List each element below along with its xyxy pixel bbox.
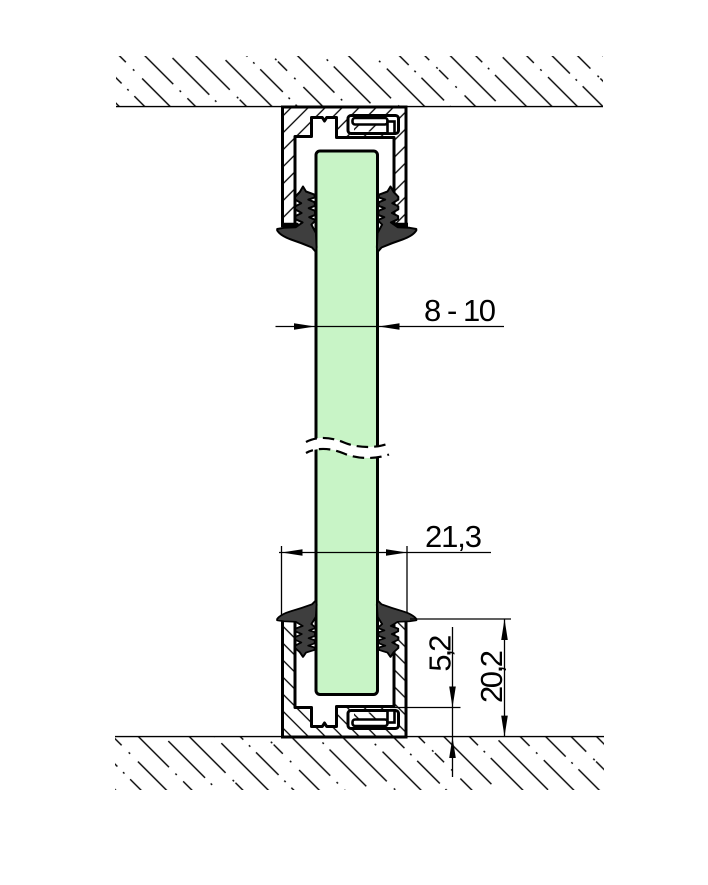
svg-text:8 - 10: 8 - 10 [424, 293, 496, 328]
svg-text:20,2: 20,2 [474, 650, 509, 703]
svg-text:5,2: 5,2 [423, 635, 458, 672]
svg-text:21,3: 21,3 [425, 519, 482, 554]
